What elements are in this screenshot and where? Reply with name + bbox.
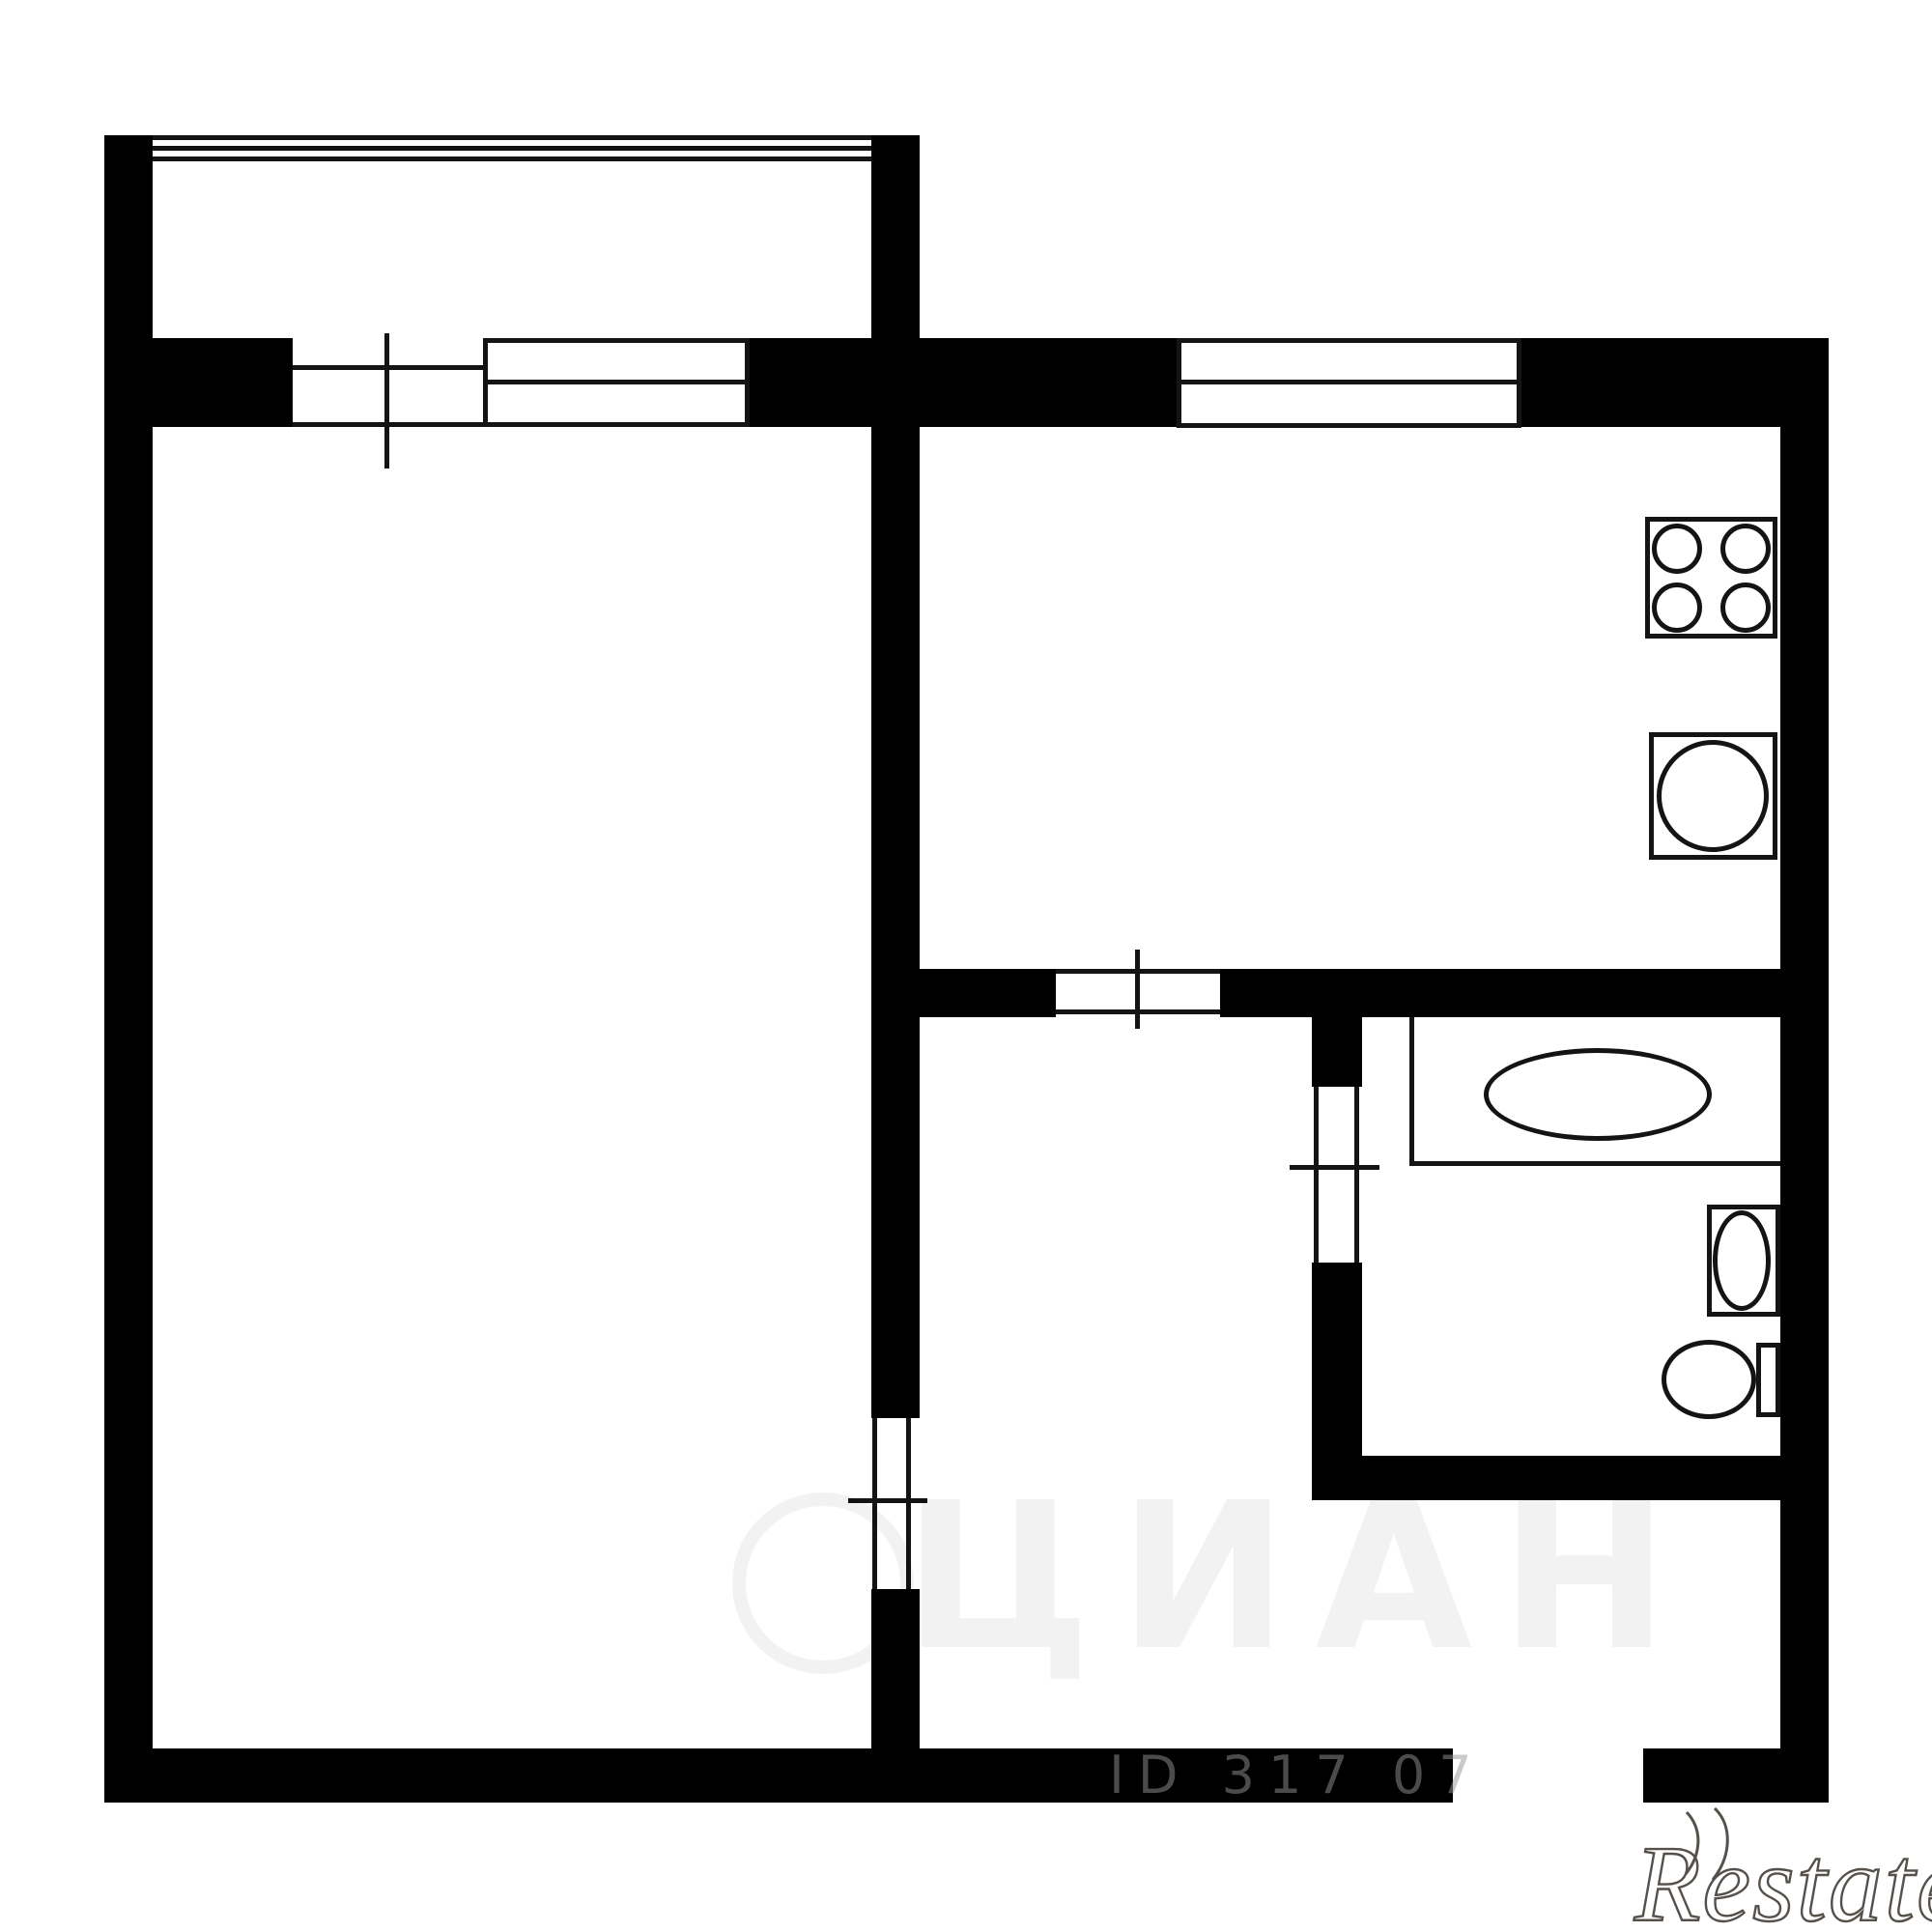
- bathroom-door-tick: [1290, 1165, 1379, 1170]
- washbasin-bowl-icon: [1713, 1210, 1771, 1311]
- room-window-mid: [483, 380, 750, 384]
- restate-logo-text: Restate: [1634, 1825, 1932, 1932]
- kitchen-window-bottom: [1177, 423, 1521, 428]
- brand-watermark-text: ЦИАН: [903, 1459, 1696, 1695]
- listing-id-watermark: ID 317 07: [1109, 1745, 1486, 1805]
- balcony-rail-3: [153, 156, 871, 161]
- stove-burner-4-icon: [1720, 582, 1771, 633]
- facade-wall-left-segment: [153, 338, 293, 427]
- floor-plan: ЦИАН ID 317 07 Restate: [0, 0, 1932, 1932]
- balcony-door-tick: [384, 333, 389, 469]
- toilet-bowl-icon: [1662, 1340, 1756, 1419]
- bathroom-door-right-line: [1354, 1087, 1359, 1263]
- partition-kitchen-hall-left: [920, 969, 1056, 1017]
- partition-room-kitchen: [871, 135, 920, 1418]
- room-window-right: [745, 338, 750, 427]
- facade-wall-right-segment: [1521, 338, 1780, 427]
- kitchen-window-mid: [1177, 380, 1521, 384]
- outer-wall-right: [1780, 338, 1829, 1803]
- restate-logo: Restate: [1488, 1804, 1932, 1932]
- bathtub-bottom-edge: [1409, 1161, 1780, 1166]
- brand-watermark-circle: [732, 1492, 914, 1674]
- balcony-rail-1: [153, 135, 871, 140]
- stove-burner-1-icon: [1652, 524, 1702, 574]
- stove-burner-3-icon: [1652, 582, 1702, 633]
- outer-wall-left: [104, 135, 153, 1803]
- balcony-rail-2: [153, 146, 871, 151]
- bathtub-icon: [1484, 1048, 1712, 1141]
- room-window-top: [483, 338, 750, 343]
- kitchen-sink-bowl-icon: [1657, 740, 1769, 852]
- partition-kitchen-hall-right: [1220, 969, 1780, 1017]
- kitchen-window-top: [1177, 338, 1521, 343]
- facade-wall-middle-segment: [750, 338, 1177, 427]
- toilet-tank-icon: [1756, 1343, 1780, 1417]
- room-window-bottom: [483, 422, 750, 427]
- room-window-left: [483, 338, 488, 427]
- bathroom-door-left-line: [1314, 1087, 1319, 1263]
- bathtub-left-edge: [1409, 1017, 1414, 1166]
- kitchen-door-tick: [1135, 950, 1140, 1029]
- stove-burner-2-icon: [1720, 524, 1771, 574]
- kitchen-window-left: [1177, 338, 1181, 428]
- kitchen-window-right: [1517, 338, 1521, 428]
- partition-bathroom-upper: [1312, 1017, 1362, 1087]
